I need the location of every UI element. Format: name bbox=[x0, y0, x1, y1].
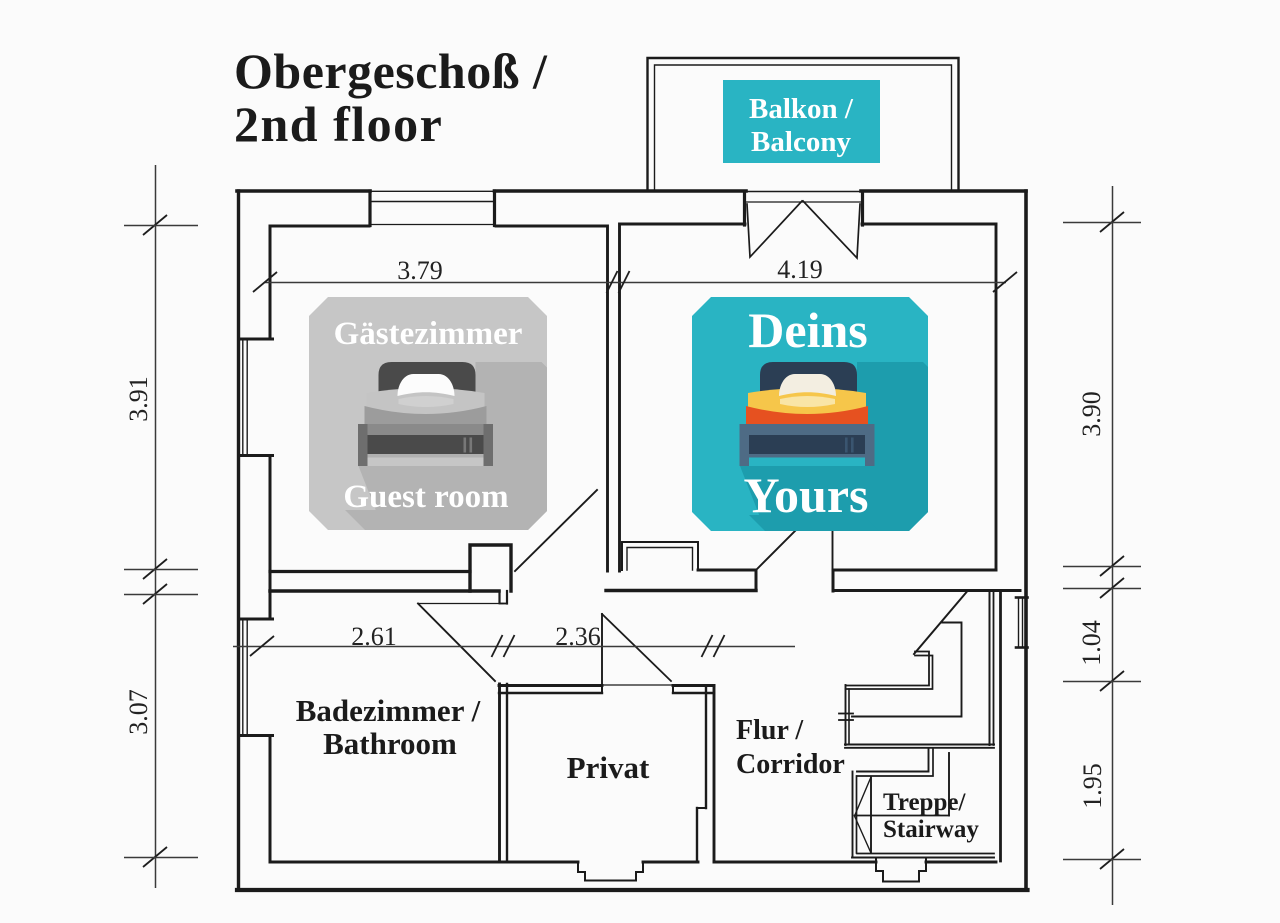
svg-text:Deins: Deins bbox=[748, 302, 867, 358]
svg-text:2.36: 2.36 bbox=[555, 622, 601, 651]
svg-text:3.07: 3.07 bbox=[124, 689, 153, 735]
svg-text:Balcony: Balcony bbox=[751, 126, 851, 158]
svg-text:Treppe/: Treppe/ bbox=[883, 789, 966, 816]
svg-text:2nd floor: 2nd floor bbox=[234, 96, 443, 152]
svg-text:1.04: 1.04 bbox=[1077, 620, 1106, 666]
svg-text:Gästezimmer: Gästezimmer bbox=[334, 316, 523, 352]
svg-text:Stairway: Stairway bbox=[883, 816, 979, 843]
svg-text:Guest room: Guest room bbox=[343, 479, 508, 515]
svg-text:Balkon /: Balkon / bbox=[749, 93, 854, 125]
svg-text:Corridor: Corridor bbox=[736, 749, 845, 780]
svg-text:4.19: 4.19 bbox=[777, 255, 823, 284]
svg-text:3.79: 3.79 bbox=[397, 256, 443, 285]
svg-text:3.91: 3.91 bbox=[124, 376, 153, 422]
svg-text:3.90: 3.90 bbox=[1077, 391, 1106, 437]
svg-text:Obergeschoß /: Obergeschoß / bbox=[234, 43, 548, 99]
svg-text:1.95: 1.95 bbox=[1078, 763, 1107, 809]
svg-text:Yours: Yours bbox=[743, 467, 868, 523]
svg-text:Privat: Privat bbox=[567, 750, 650, 785]
svg-text:Flur /: Flur / bbox=[736, 715, 804, 746]
svg-text:Bathroom: Bathroom bbox=[323, 726, 457, 761]
svg-text:Badezimmer /: Badezimmer / bbox=[296, 693, 481, 728]
svg-text:2.61: 2.61 bbox=[351, 622, 397, 651]
